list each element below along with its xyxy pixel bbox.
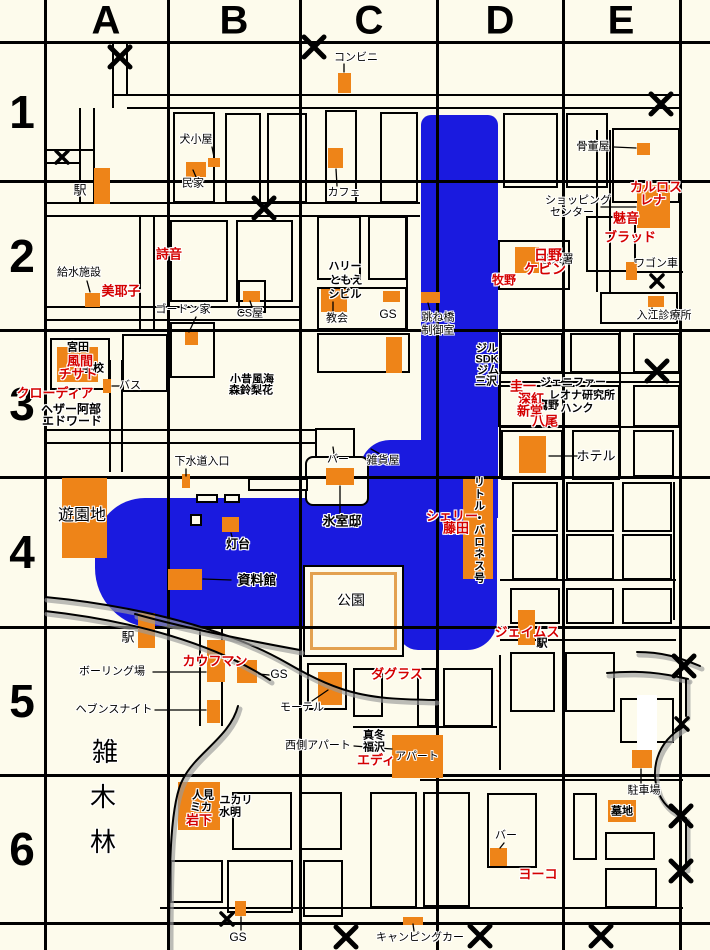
street-line [500,579,676,581]
name-label-outlined: 森鈴梨花 [229,386,273,397]
place-label: アパート [395,752,439,763]
grid-line-vertical [167,0,170,950]
character-name-label: 牧野 [492,274,516,286]
island-pier [190,514,202,526]
place-label: コンビニ [334,53,378,64]
roadblock-x-mark [676,718,688,730]
name-label-outlined: 人見 [192,791,214,802]
city-block [443,668,493,727]
character-name-label: ブラッド [604,231,656,244]
park-inner-border [310,572,397,650]
building [208,158,220,167]
building [383,291,400,302]
place-label: CS屋 [237,309,263,320]
name-label-outlined: 駅 [537,639,548,650]
place-label: 遊園地 [58,508,106,524]
city-block [633,385,680,427]
street-line [45,429,315,431]
character-name-label: 美耶子 [101,285,140,298]
character-name-label: ジェイムス [495,626,560,639]
character-name-label: 八尾 [532,415,558,428]
building [632,750,652,768]
grid-line-vertical [436,0,439,950]
grid-line-horizontal [0,922,710,925]
city-block [503,113,558,188]
building [318,672,342,705]
grid-line-vertical [44,0,47,950]
name-label-outlined: 灯台 [226,538,250,550]
roadblock-x-mark [470,926,490,946]
place-label: 公園 [337,593,365,607]
roadblock-x-mark [591,926,611,946]
character-name-label: 魅音 [613,212,639,225]
city-block [566,588,614,624]
city-block [225,113,261,203]
city-block [500,333,563,373]
street-line [121,360,123,472]
city-block [570,333,620,373]
building [403,917,423,925]
building [85,293,100,307]
place-label: モーテル [280,703,324,714]
place-label: 駅 [121,631,134,644]
name-label-outlined: エドワード [42,415,102,427]
city-block [370,792,417,908]
grid-column-header: D [486,0,515,44]
place-label: バー [327,455,349,466]
street-line [113,94,680,96]
island-pier [637,695,657,750]
grid-line-horizontal [0,329,710,332]
name-label-outlined: 墓地 [611,807,633,818]
city-block [170,860,223,903]
roadblock-x-mark [336,927,356,947]
city-block [633,430,674,477]
place-label: 駅 [73,184,86,197]
ship-label-vertical: リトル・バロネス号 [473,476,484,584]
building [326,468,354,485]
street-line [127,107,680,109]
building [386,337,402,373]
place-label: ヘブンスナイト [76,705,153,716]
roadblock-x-mark [676,718,688,730]
character-name-label: クローディア [16,387,93,400]
character-name-label: ダグラス [371,668,423,681]
place-label: ホテル [576,450,615,463]
character-name-label: カウフマン [182,655,247,668]
island-pier [224,494,240,503]
city-block [605,832,655,860]
character-name-label: 詩音 [156,248,182,261]
street-line [45,149,94,151]
place-label: GS [270,668,287,680]
name-label-outlined: 宮田 [67,343,89,354]
place-label: 雑 [92,739,118,765]
character-name-label: レナ [640,194,666,207]
place-label: 教会 [326,314,348,325]
grid-column-header: E [608,0,635,44]
place-label: 木 [90,784,116,810]
street-line [45,215,420,217]
street-line [500,372,680,374]
place-label: 雑貨屋 [367,456,400,467]
label-leader-line [87,281,90,292]
city-block [565,652,615,712]
building [421,292,440,303]
building [103,379,111,393]
roadblock-x-mark [336,927,356,947]
city-block [633,333,680,373]
city-block [300,792,342,850]
city-block [573,793,597,860]
building [94,168,110,204]
roadblock-x-mark [470,926,490,946]
place-label: 西側アパート [285,741,351,752]
place-label: バー [495,831,517,842]
grid-line-vertical [562,0,565,950]
name-label-outlined: ともえ [330,276,363,287]
label-leader-line [259,674,269,675]
building [207,700,220,723]
roadblock-x-mark [304,37,324,57]
name-label-outlined: 三沢 [475,377,497,388]
building [637,143,650,155]
name-label-outlined: シビル [329,290,362,301]
city-block [605,868,657,908]
roadblock-x-mark [674,656,694,676]
character-name-label: エディ [357,754,395,767]
curved-road-shadow [639,655,702,669]
building [235,901,246,916]
place-label: GS [229,931,246,943]
street-line [406,216,408,330]
street-line [139,216,141,330]
building [186,162,206,177]
name-label-outlined: ジェニファー [540,378,606,389]
building [185,332,198,345]
building [338,73,351,93]
name-label-outlined: ハリー [329,262,362,273]
street-line [609,130,611,292]
grid-row-header: 6 [9,822,35,876]
city-block [423,792,470,907]
place-label: 下水道入口 [175,457,230,468]
roadblock-x-mark [304,37,324,57]
street-line [635,271,683,273]
street-line [500,426,680,428]
building [328,148,343,168]
grid-row-header: 5 [9,674,35,728]
grid-line-vertical [299,0,302,950]
grid-line-horizontal [0,626,710,629]
place-label: 骨董屋 [577,142,610,153]
street-line [619,330,621,477]
curved-road [607,672,688,679]
street-line [45,162,80,164]
street-line [112,42,114,108]
name-label-outlined: 氷室邸 [322,515,361,528]
grid-line-horizontal [0,774,710,777]
building [490,848,507,866]
grid-column-header: B [220,0,249,44]
grid-row-header: 1 [9,85,35,139]
name-label-outlined: ユカリ [220,796,253,807]
city-block [622,534,672,580]
place-label: 入江診療所 [637,311,692,322]
city-block [622,588,672,624]
place-label: 林 [90,829,116,855]
city-block [512,482,558,532]
building [519,436,546,473]
roadblock-x-mark [674,656,694,676]
place-label: センター [550,208,594,219]
name-label-outlined: 真冬 [363,731,385,742]
building [243,291,260,302]
street-line [199,628,201,726]
place-label: ゴードン家 [156,305,211,316]
city-block [510,652,555,712]
city-block [622,482,672,532]
place-label: キャンピングカー [376,933,464,944]
building [138,613,155,648]
city-block [380,112,418,203]
street-line [353,726,497,728]
name-label-outlined: 資料館 [237,574,276,587]
place-label: ワゴン車 [634,259,678,270]
place-label: 給水施設 [57,268,101,279]
street-line [499,655,501,770]
name-label-outlined: ハンク [561,404,594,415]
place-label: 制御室 [422,326,455,337]
building [168,569,202,590]
building [182,474,190,488]
character-name-label: チサト [58,368,97,381]
roadblock-x-mark [651,275,663,287]
street-line [126,42,128,95]
city-block [368,216,407,280]
character-name-label: ヨーコ [518,868,557,881]
grid-column-header: C [355,0,384,44]
street-line [45,442,315,444]
street-line [596,130,598,292]
place-label: 駐車場 [628,786,661,797]
curved-road-shadow [609,675,690,682]
place-label: ショッピング [545,196,611,207]
place-label: バス [119,381,141,392]
roadblock-x-mark [591,926,611,946]
place-label: 跳ね橋 [422,313,455,324]
character-name-label: ケビン [524,262,566,276]
place-label: ボーリング場 [79,667,145,678]
grid-row-header: 4 [9,525,35,579]
curved-road [637,652,700,666]
building [222,517,239,532]
city-block [566,482,614,532]
street-line [673,482,675,620]
grid-line-vertical [679,0,682,950]
place-label: 犬小屋 [180,135,213,146]
character-name-label: 岩下 [186,814,212,827]
street-line [499,330,501,477]
park-area [303,565,404,657]
city-block [512,534,558,580]
label-leader-line [413,924,414,931]
island-pier [196,494,218,503]
town-map: ABCDE123456コンビニ犬小屋民家駅カフェ骨董屋ショッピングセンターカルロ… [0,0,710,950]
building [648,296,664,307]
roadblock-x-mark [651,94,671,114]
character-name-label: 日野 [534,248,562,262]
street-line [420,779,683,781]
city-block [566,534,614,580]
place-label: カフェ [328,188,361,199]
name-label-outlined: 水明 [219,808,241,819]
roadblock-x-mark [651,275,663,287]
street-line [109,360,111,472]
roadblock-x-mark [651,94,671,114]
place-label: 民家 [182,179,204,190]
place-label: GS [379,308,396,320]
character-name-label: 藤田 [443,522,469,535]
grid-row-header: 2 [9,229,35,283]
grid-column-header: A [92,0,121,44]
